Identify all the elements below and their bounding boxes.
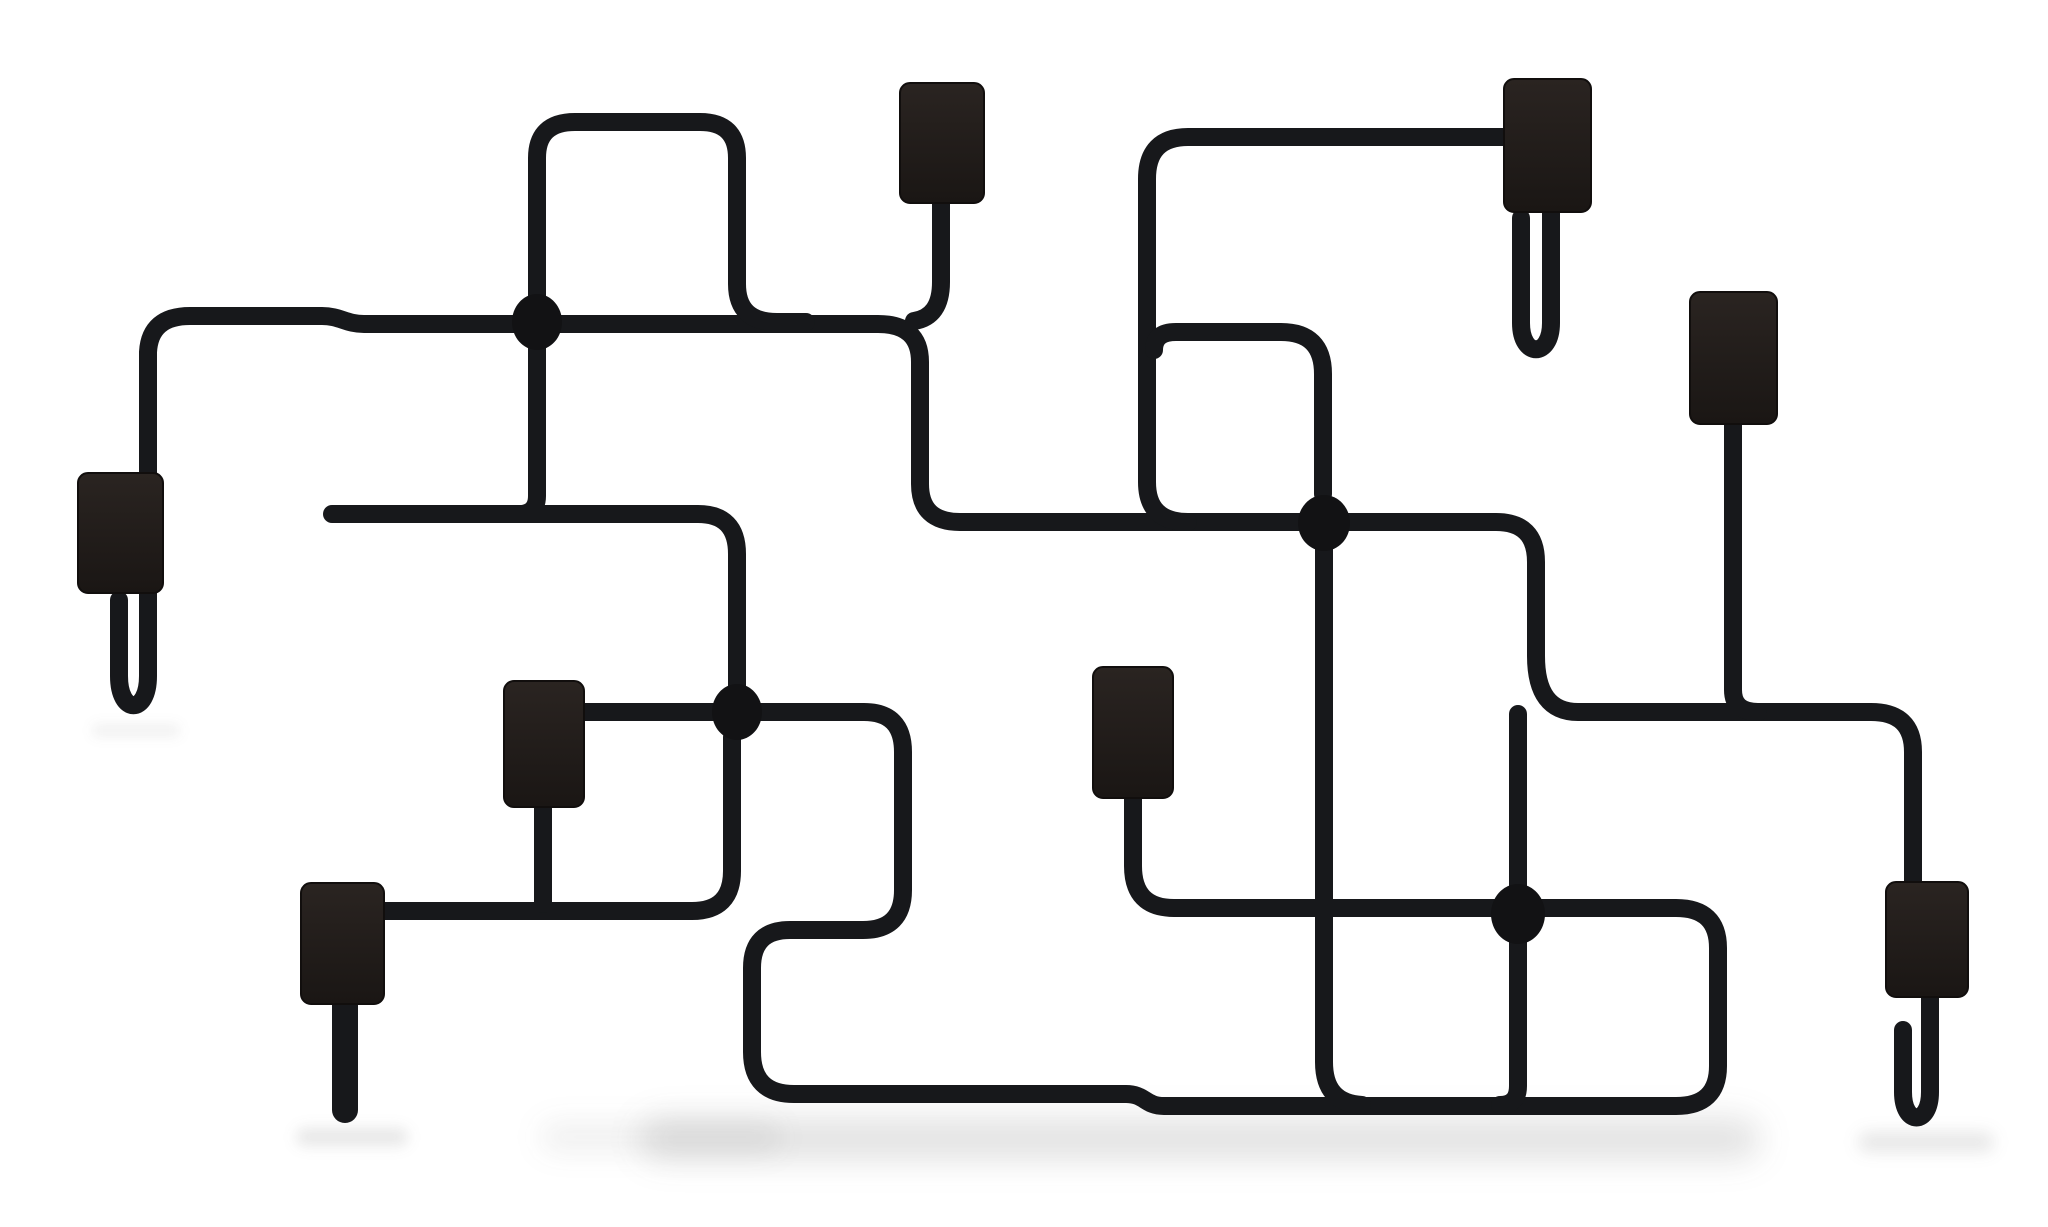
hook-pad-bottom-right [1886, 882, 1968, 997]
junction-dot-2 [1298, 495, 1350, 551]
hook-d-shadow [92, 724, 180, 737]
wire-pad-c-drop [1733, 424, 1758, 712]
hook-pad-bottom-left [301, 883, 384, 1004]
hook-pad-right-upper [1690, 292, 1777, 424]
wire-left-hook-main-run [119, 316, 1913, 884]
hook-pad-middle-left [504, 681, 584, 807]
wire-square-loop-top-right [1154, 332, 1323, 494]
floor-shadow-left-edge [540, 1122, 780, 1152]
prong-shadow [296, 1128, 408, 1146]
wire-pad-b-hook [1521, 212, 1551, 349]
wooden-pads-layer [78, 79, 1968, 1004]
wire-junction-2-drop [1324, 544, 1362, 1105]
junction-dot-3 [712, 684, 762, 740]
hook-pad-top-middle [1504, 79, 1591, 212]
product-photo-stage [0, 0, 2048, 1227]
coat-rack-photo [0, 0, 2048, 1227]
junction-dot-4 [1491, 884, 1545, 944]
wire-network-layer [119, 122, 1930, 1118]
hook-pad-top-left [900, 83, 984, 203]
wire-free-end-to-junction-3 [332, 514, 737, 692]
floor-shadow-main [640, 1118, 1760, 1160]
junction-dots-layer [512, 294, 1545, 944]
junction-dot-1 [512, 294, 562, 350]
hook-pad-left [78, 473, 163, 593]
hook-h-shadow [1858, 1132, 1994, 1152]
wire-pad-a-drop [914, 202, 941, 321]
hook-pad-middle-right [1093, 667, 1173, 798]
wire-pad-h-hook [1903, 997, 1930, 1118]
